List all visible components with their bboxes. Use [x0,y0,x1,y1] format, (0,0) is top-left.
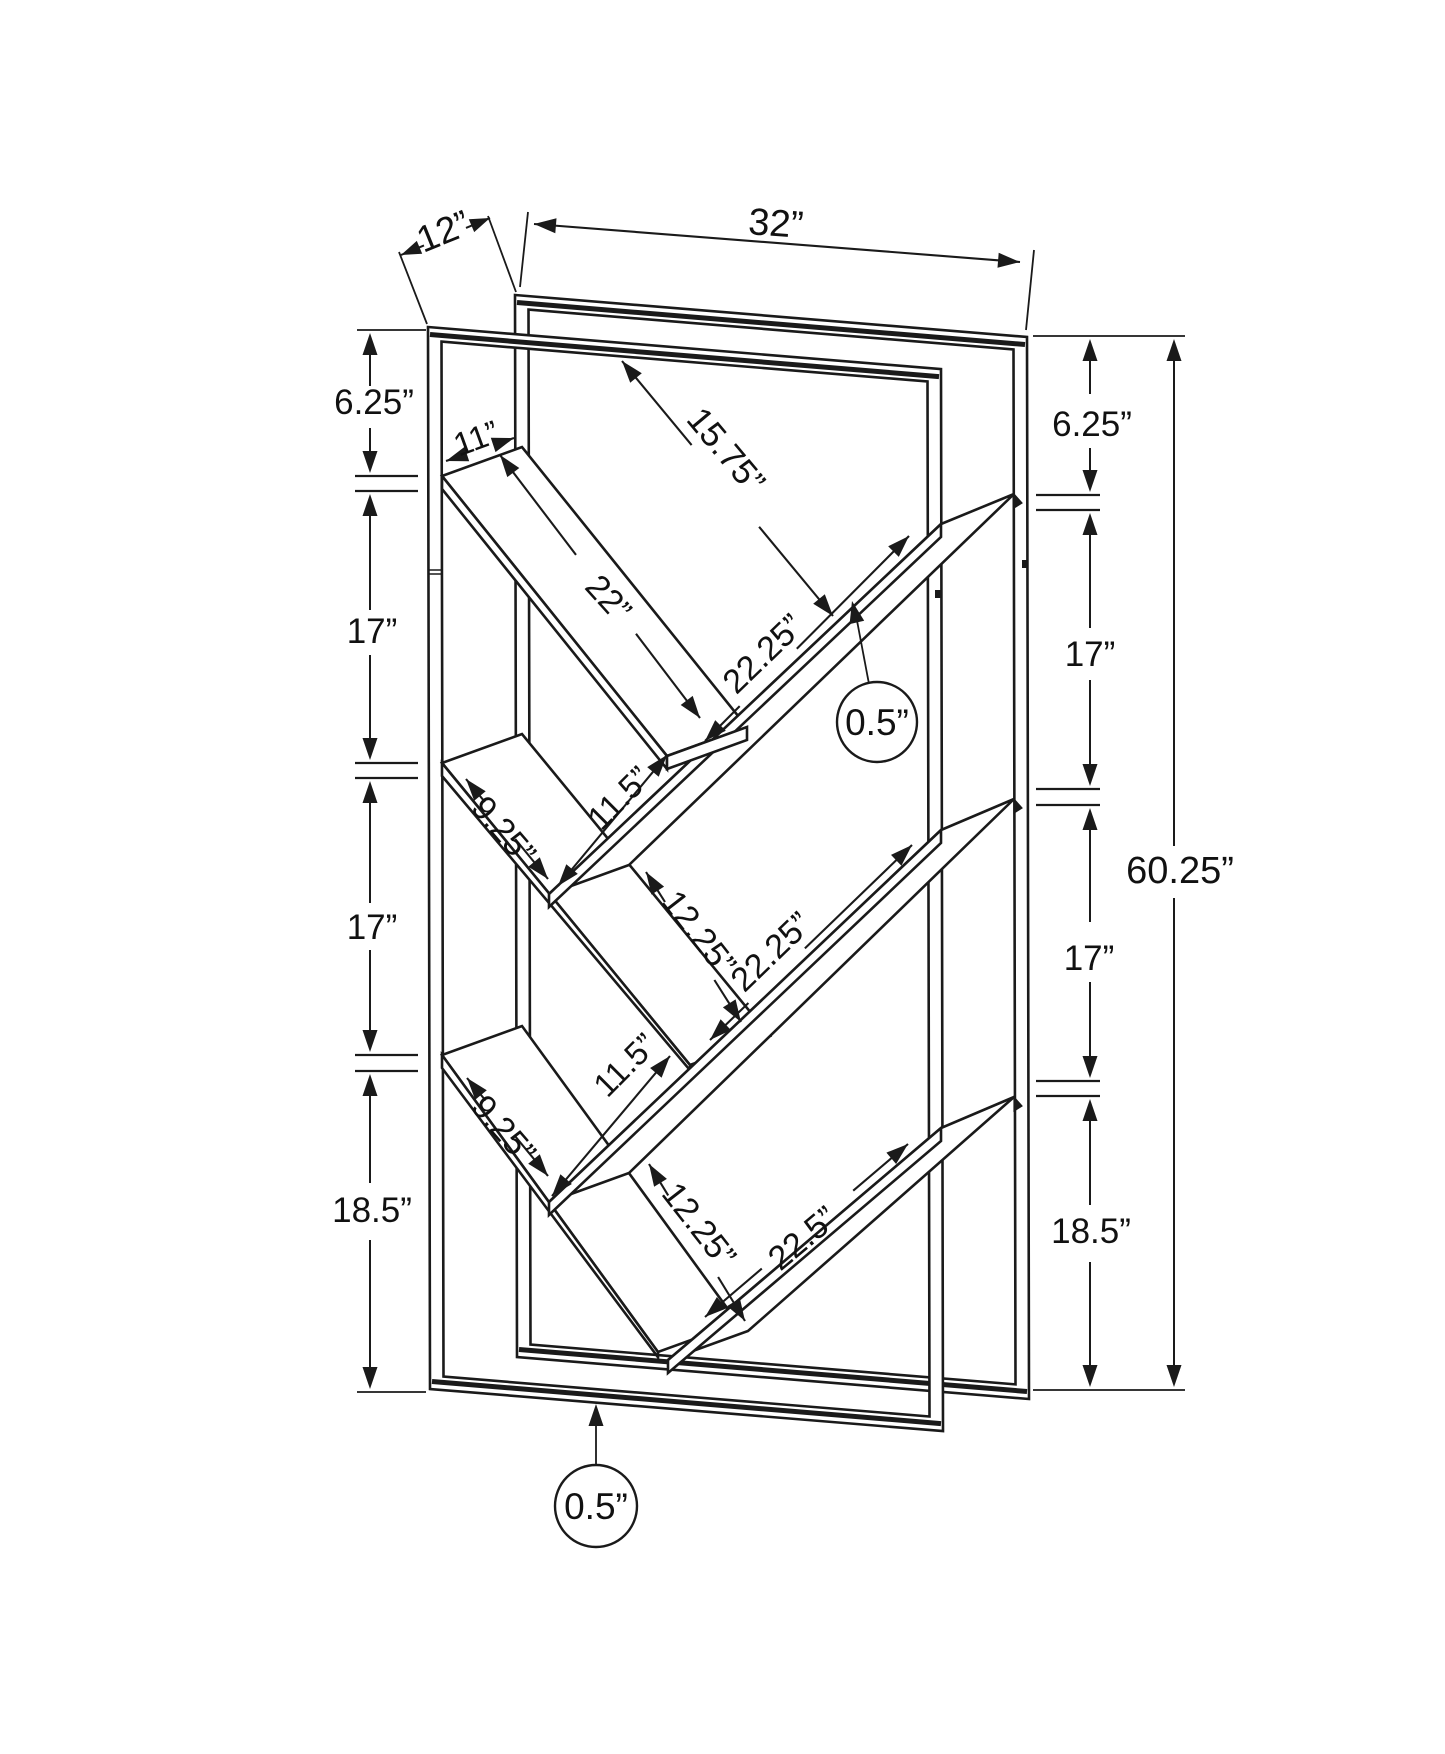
svg-text:0.5”: 0.5” [564,1486,628,1527]
svg-text:17”: 17” [1065,635,1116,674]
svg-text:6.25”: 6.25” [1052,405,1132,444]
svg-text:18.5”: 18.5” [332,1191,412,1230]
svg-text:17”: 17” [347,908,398,947]
svg-text:6.25”: 6.25” [334,383,414,422]
svg-text:32”: 32” [747,201,805,247]
svg-text:17”: 17” [1064,939,1115,978]
svg-text:18.5”: 18.5” [1051,1212,1131,1251]
svg-text:60.25”: 60.25” [1126,850,1234,892]
svg-text:0.5”: 0.5” [845,702,909,743]
svg-text:17”: 17” [347,612,398,651]
